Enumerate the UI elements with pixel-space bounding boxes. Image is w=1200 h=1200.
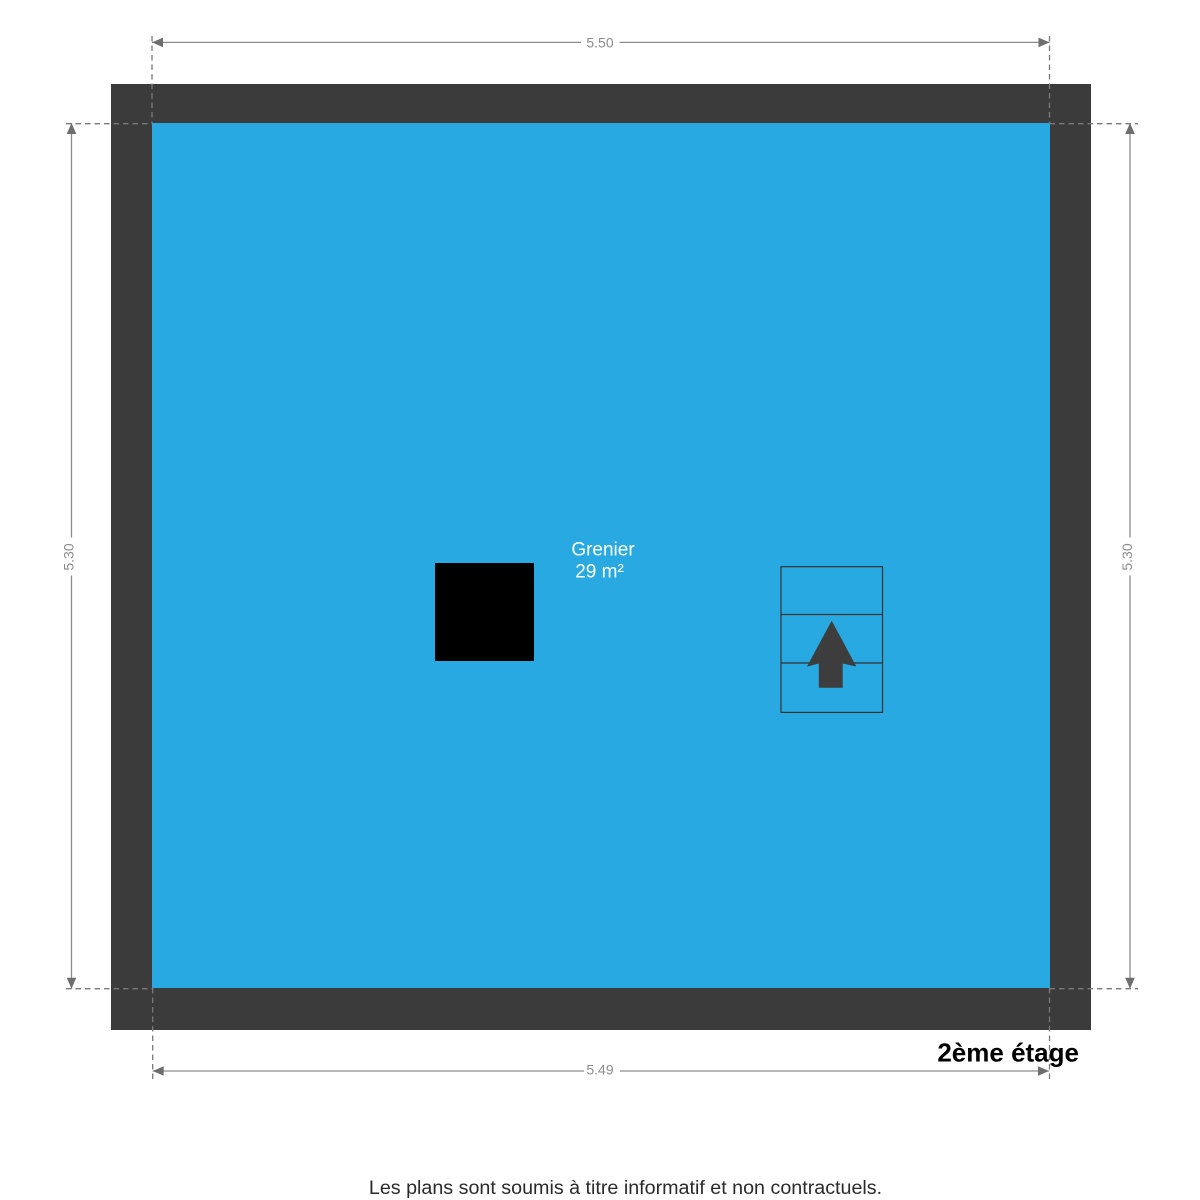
svg-text:Grenier: Grenier [571,540,635,561]
svg-text:5.30: 5.30 [61,543,77,570]
svg-text:Les plans sont soumis à titre: Les plans sont soumis à titre informatif… [369,1177,882,1199]
svg-text:5.49: 5.49 [586,1062,613,1078]
svg-text:2ème étage: 2ème étage [937,1038,1079,1068]
svg-text:5.30: 5.30 [1119,543,1135,570]
svg-text:29 m²: 29 m² [575,562,624,583]
svg-text:5.50: 5.50 [586,35,613,51]
